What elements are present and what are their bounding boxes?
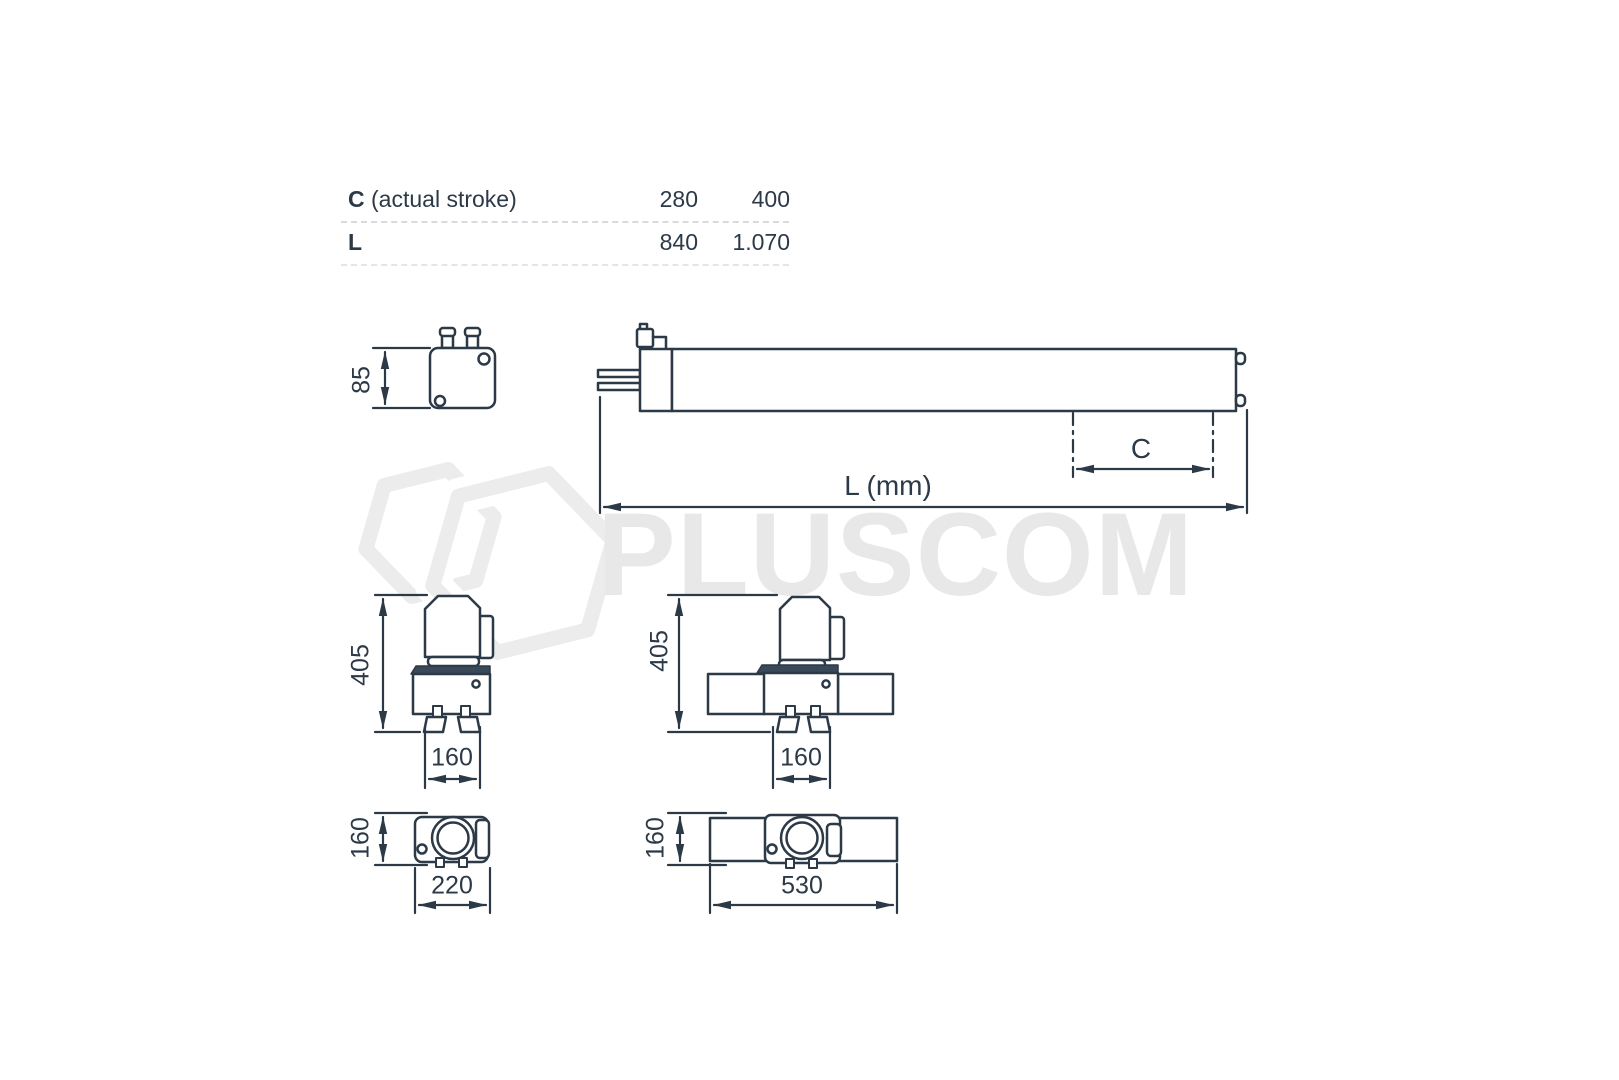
dimension-85-lines xyxy=(373,348,430,408)
dim-label-top-compact-depth: 160 xyxy=(349,817,374,859)
dim-label-top-extended-width: 530 xyxy=(781,874,823,899)
dim-label-side-compact-height: 405 xyxy=(349,644,374,686)
dim-label-stroke-c: C xyxy=(1131,435,1151,463)
dim-label-side-extended-height: 405 xyxy=(648,630,673,672)
end-view-drawing xyxy=(373,328,495,408)
dim-label-top-compact-width: 220 xyxy=(431,874,473,899)
dim-label-side-compact-width: 160 xyxy=(431,746,473,771)
dim-label-side-extended-width: 160 xyxy=(780,746,822,771)
dim-label-end-height: 85 xyxy=(350,366,375,394)
technical-drawing xyxy=(0,0,1619,1080)
dim-label-overall-length: L (mm) xyxy=(844,472,932,500)
dim-label-top-extended-depth: 160 xyxy=(644,817,669,859)
dimension-diagram-page: PLUSCOM C (actual stroke) 280 400 L 840 … xyxy=(0,0,1619,1080)
